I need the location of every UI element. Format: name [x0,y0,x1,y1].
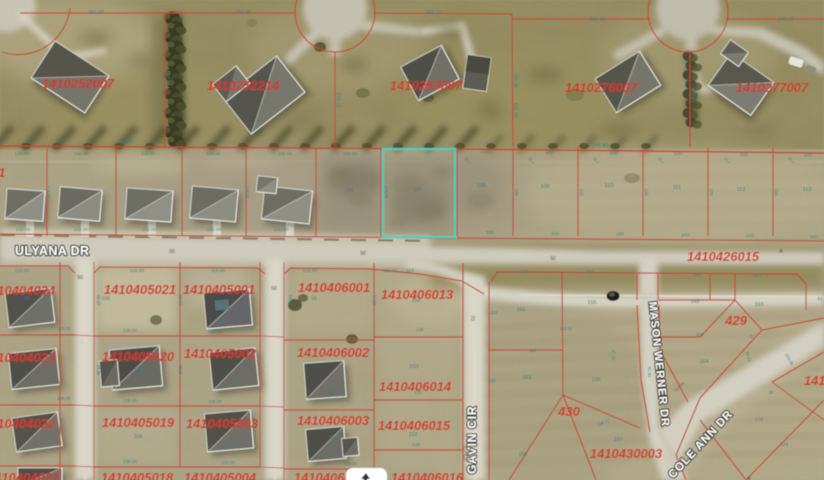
svg-text:165: 165 [691,299,700,305]
svg-text:1410404023: 1410404023 [0,350,56,365]
svg-text:118.00: 118.00 [74,151,89,157]
svg-text:1410406014: 1410406014 [379,379,452,394]
svg-text:115.00: 115.00 [130,268,145,274]
svg-text:109: 109 [540,184,549,190]
svg-text:1410276007: 1410276007 [565,80,638,95]
svg-text:100: 100 [551,231,559,237]
svg-text:157: 157 [614,437,623,443]
svg-text:123: 123 [755,417,763,422]
svg-text:110.15: 110.15 [560,326,573,331]
svg-text:265.00: 265.00 [88,10,104,16]
svg-text:100: 100 [480,149,488,155]
svg-text:100: 100 [545,150,553,156]
svg-text:150: 150 [326,390,335,396]
svg-text:57: 57 [330,436,336,442]
svg-text:150.11: 150.11 [164,70,170,86]
svg-text:1410405020: 1410405020 [102,349,175,364]
svg-text:429: 429 [724,313,747,328]
svg-text:118: 118 [490,310,498,315]
svg-text:110: 110 [605,183,614,189]
svg-text:135: 135 [644,188,649,196]
svg-text:126.00: 126.00 [57,396,71,401]
svg-text:113: 113 [406,268,414,274]
svg-text:152.86: 152.86 [689,87,695,103]
svg-text:1410406016: 1410406016 [391,470,464,480]
svg-text:1410405018: 1410405018 [101,470,174,480]
svg-text:269.00: 269.00 [235,10,251,16]
svg-text:1410426015: 1410426015 [687,249,760,264]
svg-text:100: 100 [753,273,761,279]
svg-text:1410406003: 1410406003 [297,413,370,428]
svg-text:126: 126 [412,442,420,447]
svg-text:1410405003: 1410405003 [186,416,259,431]
svg-text:100: 100 [616,232,624,238]
svg-text:430: 430 [557,404,580,419]
svg-text:ULYANA DR: ULYANA DR [15,244,89,258]
svg-text:1410405002: 1410405002 [184,346,257,361]
svg-text:387.38: 387.38 [117,139,133,145]
svg-text:126.00: 126.00 [123,398,137,403]
svg-text:135: 135 [514,188,519,196]
svg-text:126.00: 126.00 [57,326,71,331]
svg-text:118.00: 118.00 [141,151,156,157]
svg-text:1410406013: 1410406013 [381,287,454,302]
svg-text:126.00: 126.00 [123,328,137,333]
svg-text:1410252007: 1410252007 [42,76,115,91]
svg-text:57: 57 [227,442,233,448]
svg-text:100: 100 [810,234,818,240]
svg-text:110: 110 [488,378,496,384]
svg-text:11: 11 [0,165,6,180]
svg-text:111: 111 [673,185,682,191]
svg-text:135.00: 135.00 [221,460,235,465]
svg-text:1410406001: 1410406001 [298,280,370,295]
svg-text:125.00: 125.00 [208,399,222,404]
svg-text:113: 113 [803,187,812,193]
svg-text:115.00: 115.00 [383,268,398,274]
svg-text:115.00: 115.00 [15,268,30,274]
svg-text:1410277007: 1410277007 [736,80,809,95]
svg-text:155: 155 [588,300,597,306]
svg-text:118.00: 118.00 [384,185,389,199]
svg-text:54: 54 [347,188,353,194]
svg-text:56: 56 [311,296,317,302]
svg-text:A: A [747,476,751,480]
svg-text:107: 107 [414,187,423,193]
svg-text:98.02: 98.02 [96,295,101,306]
svg-text:105: 105 [134,368,143,374]
svg-text:A: A [779,249,783,255]
svg-text:102.00: 102.00 [16,227,31,233]
svg-text:100: 100 [681,232,689,238]
svg-text:1410252214: 1410252214 [207,78,280,93]
svg-text:161: 161 [523,375,532,381]
svg-text:98.00: 98.00 [288,295,293,306]
svg-text:115.00: 115.00 [343,151,358,157]
svg-text:100: 100 [610,150,618,156]
svg-text:100: 100 [740,152,748,158]
svg-text:100: 100 [585,269,593,275]
svg-text:100: 100 [746,233,754,239]
svg-text:118.00: 118.00 [245,185,250,199]
svg-text:269.10: 269.10 [589,17,605,23]
svg-text:100: 100 [674,151,682,157]
svg-text:32: 32 [750,334,755,339]
svg-text:58: 58 [219,318,225,324]
svg-text:30: 30 [769,390,774,395]
svg-text:1410406015: 1410406015 [378,418,451,433]
svg-text:100: 100 [520,269,528,275]
svg-text:153: 153 [410,364,419,370]
svg-text:115.00: 115.00 [211,268,226,274]
svg-text:150.11: 150.11 [335,92,341,108]
svg-text:155.95: 155.95 [512,102,518,118]
svg-text:50: 50 [169,249,175,255]
svg-text:135: 135 [709,188,714,196]
svg-text:118.00: 118.00 [46,185,51,199]
svg-text:1410430002: 1410430002 [804,373,824,388]
svg-text:100: 100 [486,230,494,236]
svg-text:1410405019: 1410405019 [102,415,175,430]
svg-text:81.93: 81.93 [647,367,652,378]
svg-text:102.00: 102.00 [274,227,289,233]
svg-text:102.00: 102.00 [142,227,157,233]
svg-text:1410430003: 1410430003 [590,446,663,461]
svg-text:164: 164 [700,359,709,365]
svg-text:1410405004: 1410405004 [184,470,257,480]
svg-text:104: 104 [134,434,143,440]
svg-text:115.00: 115.00 [303,268,318,274]
svg-text:118.00: 118.00 [206,151,221,157]
svg-text:150.38: 150.38 [512,72,518,88]
svg-text:1410404022: 1410404022 [0,416,56,431]
svg-text:1410253007: 1410253007 [390,78,463,93]
svg-text:1410406002: 1410406002 [297,345,370,360]
svg-text:162: 162 [517,307,526,313]
svg-text:100: 100 [804,153,812,159]
svg-text:125.00: 125.00 [343,461,357,466]
svg-text:1410404024: 1410404024 [0,283,56,298]
svg-text:100: 100 [693,272,701,278]
svg-text:135.00: 135.00 [123,459,137,464]
svg-text:269.12: 269.12 [425,10,441,16]
svg-text:125: 125 [416,327,424,332]
svg-text:50: 50 [550,256,556,262]
svg-text:112: 112 [737,187,746,193]
svg-text:156: 156 [592,377,601,383]
svg-text:125.00: 125.00 [208,329,222,334]
svg-text:1410405021: 1410405021 [104,282,176,297]
svg-text:130.00: 130.00 [15,151,30,157]
svg-text:163: 163 [755,302,764,308]
svg-text:241.32: 241.32 [778,17,794,23]
svg-text:97.50: 97.50 [372,295,377,306]
svg-text:124: 124 [780,442,789,448]
svg-text:102.00: 102.00 [207,227,222,233]
svg-text:98.00: 98.00 [178,365,183,376]
svg-text:98.00: 98.00 [96,365,101,376]
svg-text:59: 59 [231,380,237,386]
svg-text:50: 50 [271,286,277,292]
svg-text:87.10: 87.10 [611,350,616,361]
svg-text:118: 118 [530,348,537,353]
svg-text:50: 50 [360,251,366,257]
svg-text:50: 50 [77,275,83,281]
svg-text:1410405001: 1410405001 [183,282,255,297]
svg-text:108: 108 [476,183,485,189]
svg-text:62: 62 [818,296,823,301]
svg-text:115.00: 115.00 [278,151,293,157]
svg-text:106: 106 [696,332,704,338]
svg-text:102.00: 102.00 [74,227,89,233]
svg-text:160: 160 [519,452,528,458]
svg-text:1410404021: 1410404021 [0,470,59,480]
svg-text:70: 70 [469,315,475,321]
svg-text:GAVIN CIR: GAVIN CIR [465,406,479,474]
svg-text:135: 135 [774,188,779,196]
svg-text:135: 135 [579,188,584,196]
svg-text:249.40: 249.40 [592,143,608,149]
